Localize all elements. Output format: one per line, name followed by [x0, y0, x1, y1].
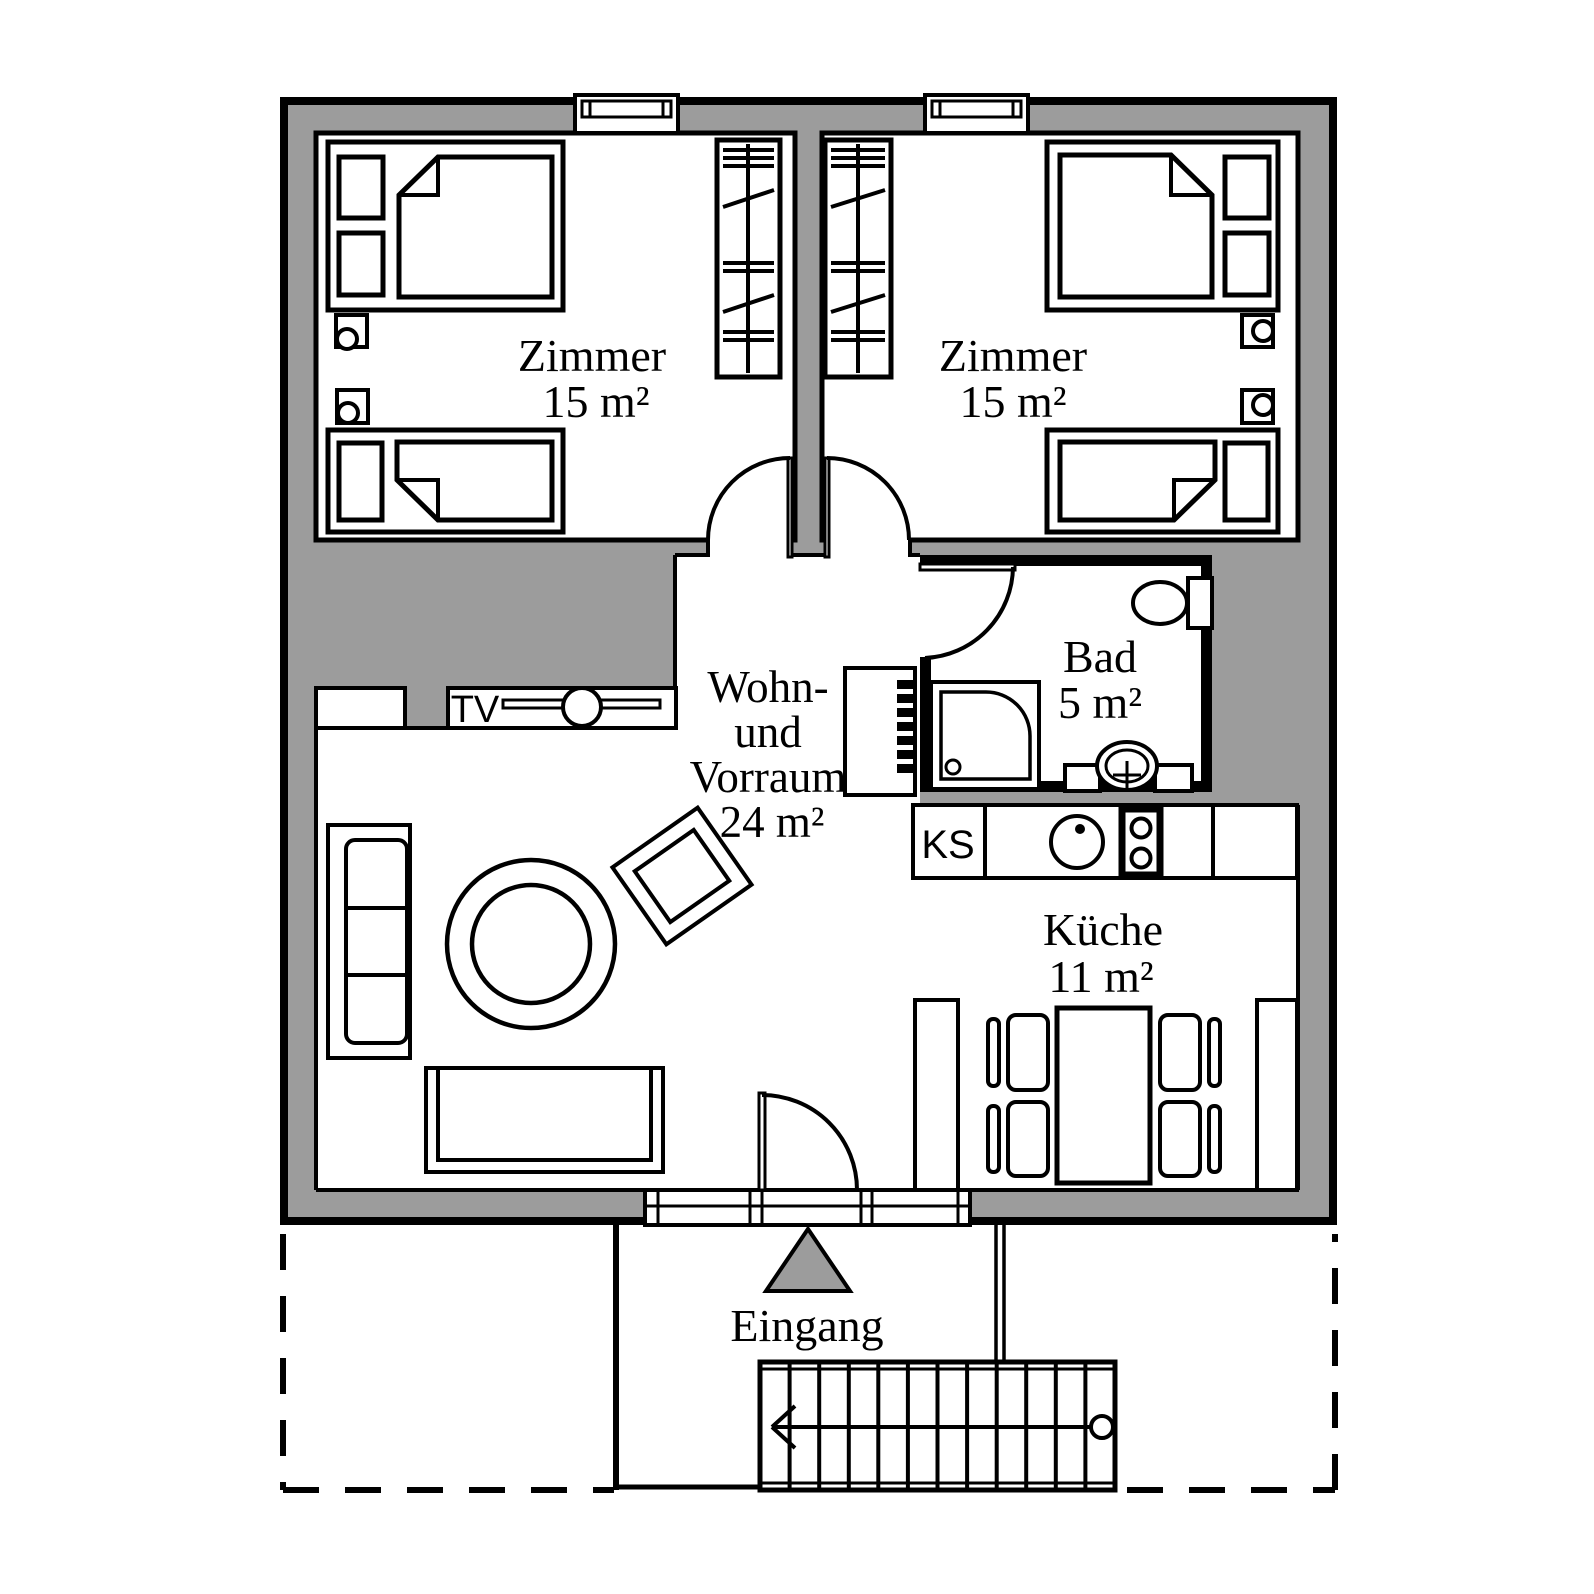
room-area: 24 m² — [720, 797, 825, 847]
double-bed-mattress — [1060, 155, 1212, 297]
room-label: Küche — [1043, 904, 1163, 955]
window-top-right — [925, 95, 1028, 133]
entrance-sill — [645, 1190, 970, 1225]
pillow — [339, 157, 383, 218]
tv-label: TV — [451, 689, 500, 731]
lamp-icon — [1253, 395, 1273, 415]
room-area: 15 m² — [959, 376, 1066, 427]
svg-text:und: und — [734, 707, 802, 757]
radiator — [845, 668, 915, 795]
room-area: 15 m² — [542, 376, 649, 427]
round-table — [447, 860, 615, 1028]
door-leaf — [788, 458, 792, 557]
room-label: Zimmer — [939, 330, 1087, 381]
floor-plan-page: Zimmer 15 m² Zimmer — [0, 0, 1594, 1594]
fridge-label: KS — [921, 823, 974, 867]
svg-text:Wohn-: Wohn- — [707, 662, 828, 712]
svg-text:Vorraum: Vorraum — [690, 752, 847, 802]
lamp-icon — [337, 329, 357, 349]
pillow — [1225, 443, 1268, 520]
bedroom-right-door-opening — [827, 536, 910, 557]
window-pane — [932, 101, 1021, 117]
double-bed-mattress — [399, 157, 552, 297]
staircase — [760, 1362, 1115, 1490]
lamp-icon — [1253, 321, 1273, 341]
lamp-icon — [338, 403, 358, 423]
bathroom: Bad 5 m² — [917, 561, 1212, 792]
floor-plan: Zimmer 15 m² Zimmer — [0, 0, 1594, 1594]
pillow — [1225, 233, 1269, 295]
entrance-direction-marker — [766, 1229, 850, 1291]
dining-table — [1057, 1008, 1150, 1183]
door-leaf — [825, 458, 829, 557]
tv-stand-icon — [563, 688, 601, 726]
sofa-bottom — [426, 1068, 663, 1172]
wardrobe — [717, 140, 780, 377]
bath-door-opening — [917, 567, 934, 657]
toilet-icon — [1133, 578, 1212, 628]
entrance-label: Eingang — [730, 1300, 883, 1351]
kitchen-cabinet — [915, 1000, 958, 1190]
bedroom-left-door-opening — [708, 536, 790, 557]
sofa-left — [328, 825, 410, 1058]
room-label: Bad — [1063, 631, 1137, 682]
stove-icon — [1122, 809, 1160, 875]
room-area: 11 m² — [1048, 951, 1153, 1002]
tv-sideboard: TV — [448, 688, 676, 731]
pillow — [339, 443, 382, 520]
shower-icon — [931, 682, 1039, 789]
door-leaf — [759, 1093, 765, 1190]
room-label: Zimmer — [518, 330, 666, 381]
kitchen-cabinet — [1257, 1000, 1297, 1190]
window-top-left — [575, 95, 678, 133]
door-leaf — [920, 564, 1015, 570]
kitchen-sink-icon — [1051, 816, 1103, 868]
pillow — [1225, 157, 1269, 218]
window-pane — [582, 101, 671, 117]
wardrobe — [825, 140, 891, 377]
pillow — [339, 233, 383, 295]
room-area: 5 m² — [1058, 677, 1142, 728]
wall-niche — [316, 688, 405, 728]
